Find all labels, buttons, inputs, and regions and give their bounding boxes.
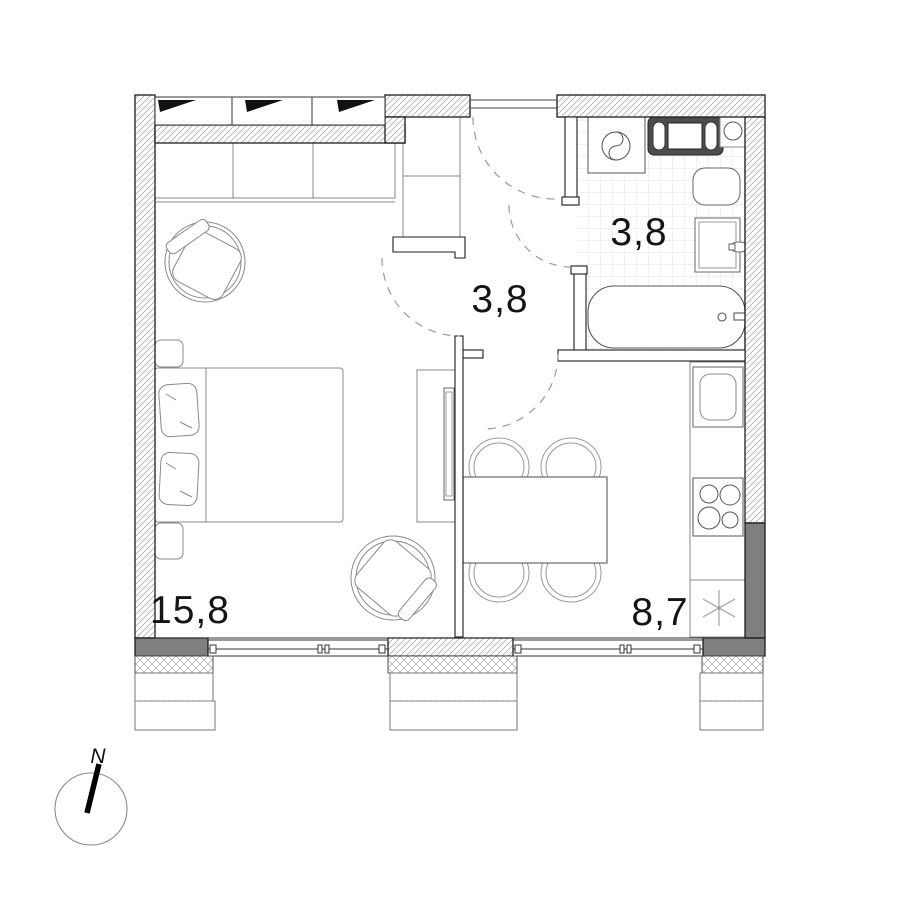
room-area-label-bathroom: 3,8 bbox=[610, 211, 667, 255]
kitchen-sink-symbol bbox=[693, 367, 743, 427]
room-area-label-kitchen: 8,7 bbox=[631, 591, 688, 635]
towel-radiator-symbol bbox=[648, 117, 723, 155]
floor-plan-canvas: 15,8 3,8 3,8 8,7 N bbox=[0, 0, 900, 900]
compass-north-label: N bbox=[90, 745, 105, 769]
entrance-door-arc bbox=[473, 117, 555, 199]
bottom-window-living bbox=[208, 640, 388, 656]
compass bbox=[55, 764, 127, 845]
armchair-symbol-2 bbox=[351, 536, 439, 623]
top-window bbox=[155, 97, 385, 125]
compass-circle bbox=[55, 773, 127, 845]
double-bed-symbol bbox=[155, 368, 343, 522]
stove-symbol bbox=[693, 478, 743, 536]
exterior-piers bbox=[135, 656, 763, 730]
washbasin-symbol bbox=[695, 218, 748, 272]
bottom-window-kitchen bbox=[513, 640, 703, 656]
corner-sink-symbol bbox=[720, 117, 745, 147]
room-area-label-living: 15,8 bbox=[150, 589, 230, 633]
floor-plan-drawing bbox=[0, 0, 900, 900]
toilet-symbol bbox=[693, 168, 740, 205]
bedroom-door-arc bbox=[382, 258, 460, 336]
hallway-closet-symbol bbox=[403, 115, 460, 237]
kitchen-door-arc bbox=[483, 354, 558, 429]
bathtub-symbol bbox=[588, 286, 749, 348]
dining-table-symbol bbox=[463, 477, 607, 563]
washing-machine-symbol bbox=[588, 117, 645, 173]
wardrobe-symbol bbox=[155, 143, 395, 202]
bathroom-door-arc bbox=[509, 205, 571, 267]
compass-needle bbox=[87, 764, 99, 813]
armchair-symbol bbox=[164, 218, 245, 303]
entrance-threshold bbox=[470, 100, 557, 108]
room-area-label-hallway: 3,8 bbox=[471, 278, 528, 322]
tv-stand-symbol bbox=[417, 370, 455, 522]
